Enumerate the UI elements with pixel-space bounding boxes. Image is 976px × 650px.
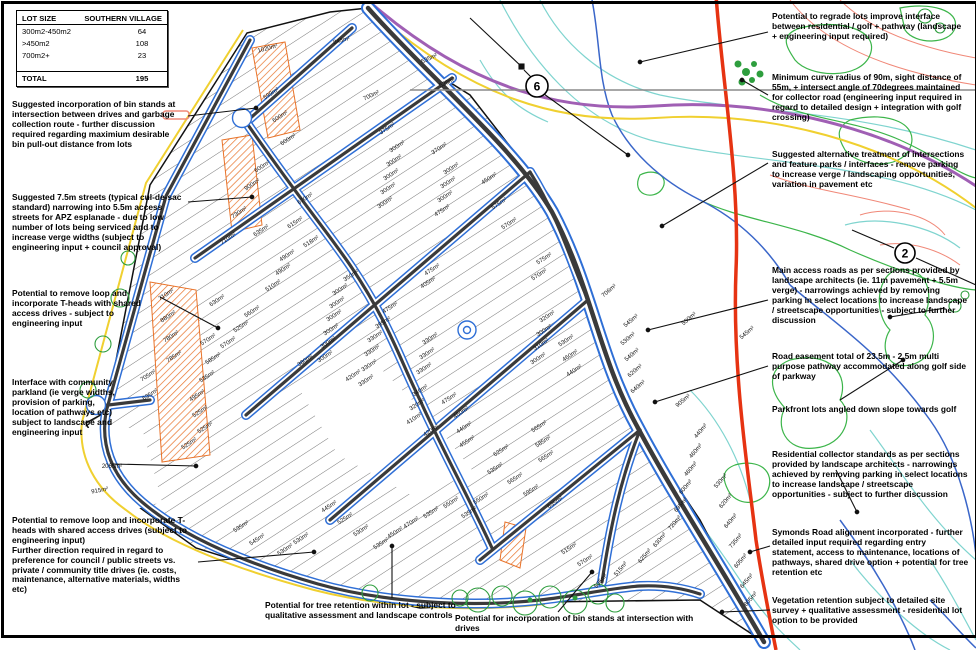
marker-6-number: 6	[534, 80, 541, 94]
annotation-curve-radius: Minimum curve radius of 90m, sight dista…	[772, 73, 970, 123]
annotation-road-easement: Road easement total of 23.5m - 2.5m mult…	[772, 352, 968, 382]
annotation-intersection-treatment: Suggested alternative treatment of inter…	[772, 150, 968, 190]
table-column-header: SOUTHERN VILLAGE	[84, 14, 162, 23]
annotation-regrade-lots: Potential to regrade lots improve interf…	[772, 12, 968, 42]
annotation-bin-stands: Suggested incorporation of bin stands at…	[12, 100, 184, 150]
marker-2-number: 2	[902, 247, 909, 261]
lot-size-table: LOT SIZE SOUTHERN VILLAGE 300m2-450m2 64…	[16, 10, 168, 87]
lot-area-label: 460m²	[683, 461, 699, 478]
table-row-label: 700m2+	[22, 51, 50, 60]
lot-area-label: 545m²	[739, 325, 756, 341]
annotation-bin-stands-bottom: Potential for incorporation of bin stand…	[455, 614, 697, 634]
marker-2: 2	[895, 243, 915, 263]
lot-area-label: 620m²	[627, 363, 644, 379]
table-row-value: 23	[122, 51, 162, 60]
table-title: LOT SIZE	[22, 14, 56, 23]
lot-area-label: 640m²	[723, 513, 739, 530]
annotation-vegetation-retention: Vegetation retention subject to detailed…	[772, 596, 968, 626]
roundabout-island	[464, 327, 471, 334]
table-row-value: 64	[122, 27, 162, 36]
lot-area-label: 620m²	[718, 493, 734, 510]
symonds-road-line	[716, 0, 776, 650]
table-row-label: 300m2-450m2	[22, 27, 71, 36]
marker-6: 6	[526, 75, 548, 97]
lot-area-label: 530m²	[681, 311, 698, 327]
lot-area-label: 905m²	[675, 393, 692, 409]
site-plan-sheet: 6 2 1020m²845m²599m²600m²600m²600m²900m²…	[0, 0, 976, 650]
annotation-symonds-road: Symonds Road alignment incorporated - fu…	[772, 528, 970, 578]
lot-area-label: 460m²	[688, 443, 704, 460]
lot-area-label: 545m²	[623, 313, 640, 329]
lot-area-label: 605m²	[733, 553, 749, 570]
lot-area-label: 2065m²	[102, 464, 122, 470]
lot-area-label: 600m²	[678, 479, 694, 496]
annotation-parkfront-lots: Parkfront lots angled down slope towards…	[772, 405, 968, 415]
lot-area-label: 530m²	[620, 331, 637, 347]
annotation-remove-loop-t-heads: Potential to remove loop and incorporate…	[12, 289, 162, 329]
lot-area-label: 440m²	[693, 423, 709, 440]
annotation-main-access-roads: Main access roads as per sections provid…	[772, 266, 968, 325]
lot-area-label: 640m²	[630, 379, 647, 395]
table-total-value: 195	[122, 74, 162, 83]
table-total-label: TOTAL	[22, 74, 47, 83]
lot-area-label: 735m²	[728, 533, 744, 550]
table-row-value: 108	[122, 39, 162, 48]
annotation-7-5m-streets: Suggested 7.5m streets (typical cul-de-s…	[12, 193, 190, 252]
lot-area-label: 706m²	[601, 283, 618, 299]
lot-area-label: 540m²	[624, 347, 641, 363]
annotation-community-parkland: Interface with community parkland (ie ve…	[12, 378, 116, 437]
cul-de-sac-bulb	[233, 109, 252, 128]
annotation-residential-collector: Residential collector standards as per s…	[772, 450, 968, 500]
annotation-remove-loop-bottom: Potential to remove loop and incorporate…	[12, 516, 194, 595]
table-row-label: >450m2	[22, 39, 50, 48]
lot-area-label: 645m²	[739, 573, 755, 590]
